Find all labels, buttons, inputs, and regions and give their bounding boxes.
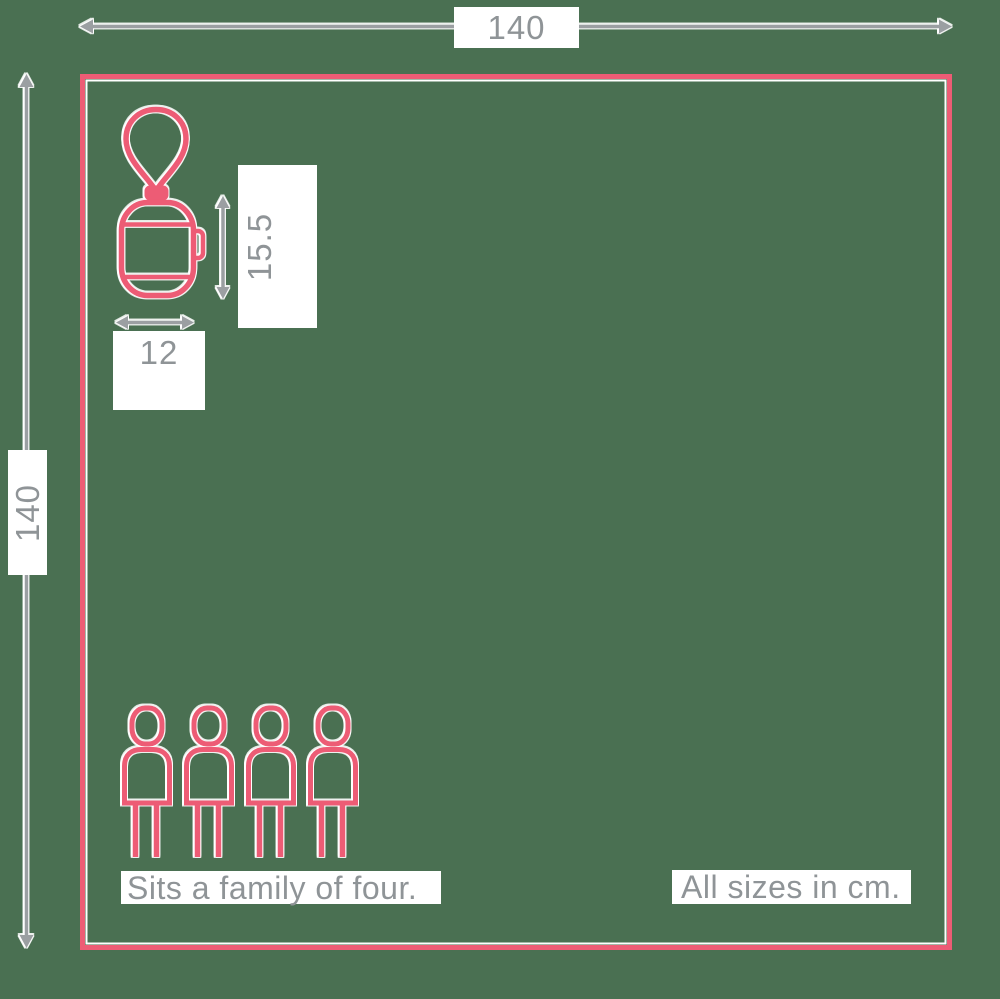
capacity-caption: Sits a family of four. xyxy=(121,871,441,904)
person-torso xyxy=(125,750,170,804)
item-height-value: 15.5 xyxy=(241,212,279,280)
item-height-arrow-top-head xyxy=(217,196,230,208)
item-width-label: 12 xyxy=(113,331,205,410)
person-icon xyxy=(311,708,356,857)
person-icon xyxy=(125,708,170,857)
item-width-arrow-right-head xyxy=(182,316,194,329)
person-icon xyxy=(187,708,232,857)
person-torso xyxy=(249,750,294,804)
capacity-caption-text: Sits a family of four. xyxy=(127,870,417,906)
width-arrow-right-head xyxy=(939,20,952,34)
person-head xyxy=(132,708,162,744)
hanging-lantern-icon xyxy=(122,110,204,296)
outer-width-value: 140 xyxy=(487,9,545,47)
person-head xyxy=(256,708,286,744)
outer-square-border xyxy=(83,77,950,948)
dimension-diagram: 140 140 15.5 12 Sits a family of four. A… xyxy=(0,0,1000,999)
diagram-graphics xyxy=(0,0,1000,999)
outer-height-label: 140 xyxy=(8,450,47,575)
person-head xyxy=(194,708,224,744)
person-torso xyxy=(187,750,232,804)
width-arrow-left-head xyxy=(80,20,93,34)
lantern-body xyxy=(122,203,194,296)
item-width-arrow-left-head xyxy=(116,316,128,329)
person-head xyxy=(318,708,348,744)
lantern-knob xyxy=(145,186,169,201)
height-arrow-top-head xyxy=(20,74,34,87)
outer-height-value: 140 xyxy=(9,483,47,541)
units-caption-text: All sizes in cm. xyxy=(681,869,901,905)
outer-square-inner-highlight xyxy=(87,81,946,944)
outer-square xyxy=(83,77,950,948)
four-person-figures xyxy=(125,708,356,857)
item-width-value: 12 xyxy=(140,334,179,372)
person-torso xyxy=(311,750,356,804)
lantern-loop-handle xyxy=(126,110,186,192)
item-height-arrow xyxy=(217,196,230,299)
units-caption: All sizes in cm. xyxy=(672,870,911,904)
item-width-arrow xyxy=(116,316,194,329)
item-height-arrow-bottom-head xyxy=(217,287,230,299)
person-icon xyxy=(249,708,294,857)
height-arrow-bottom-head xyxy=(20,935,34,948)
outer-width-label: 140 xyxy=(454,7,579,48)
item-height-label: 15.5 xyxy=(238,165,317,328)
